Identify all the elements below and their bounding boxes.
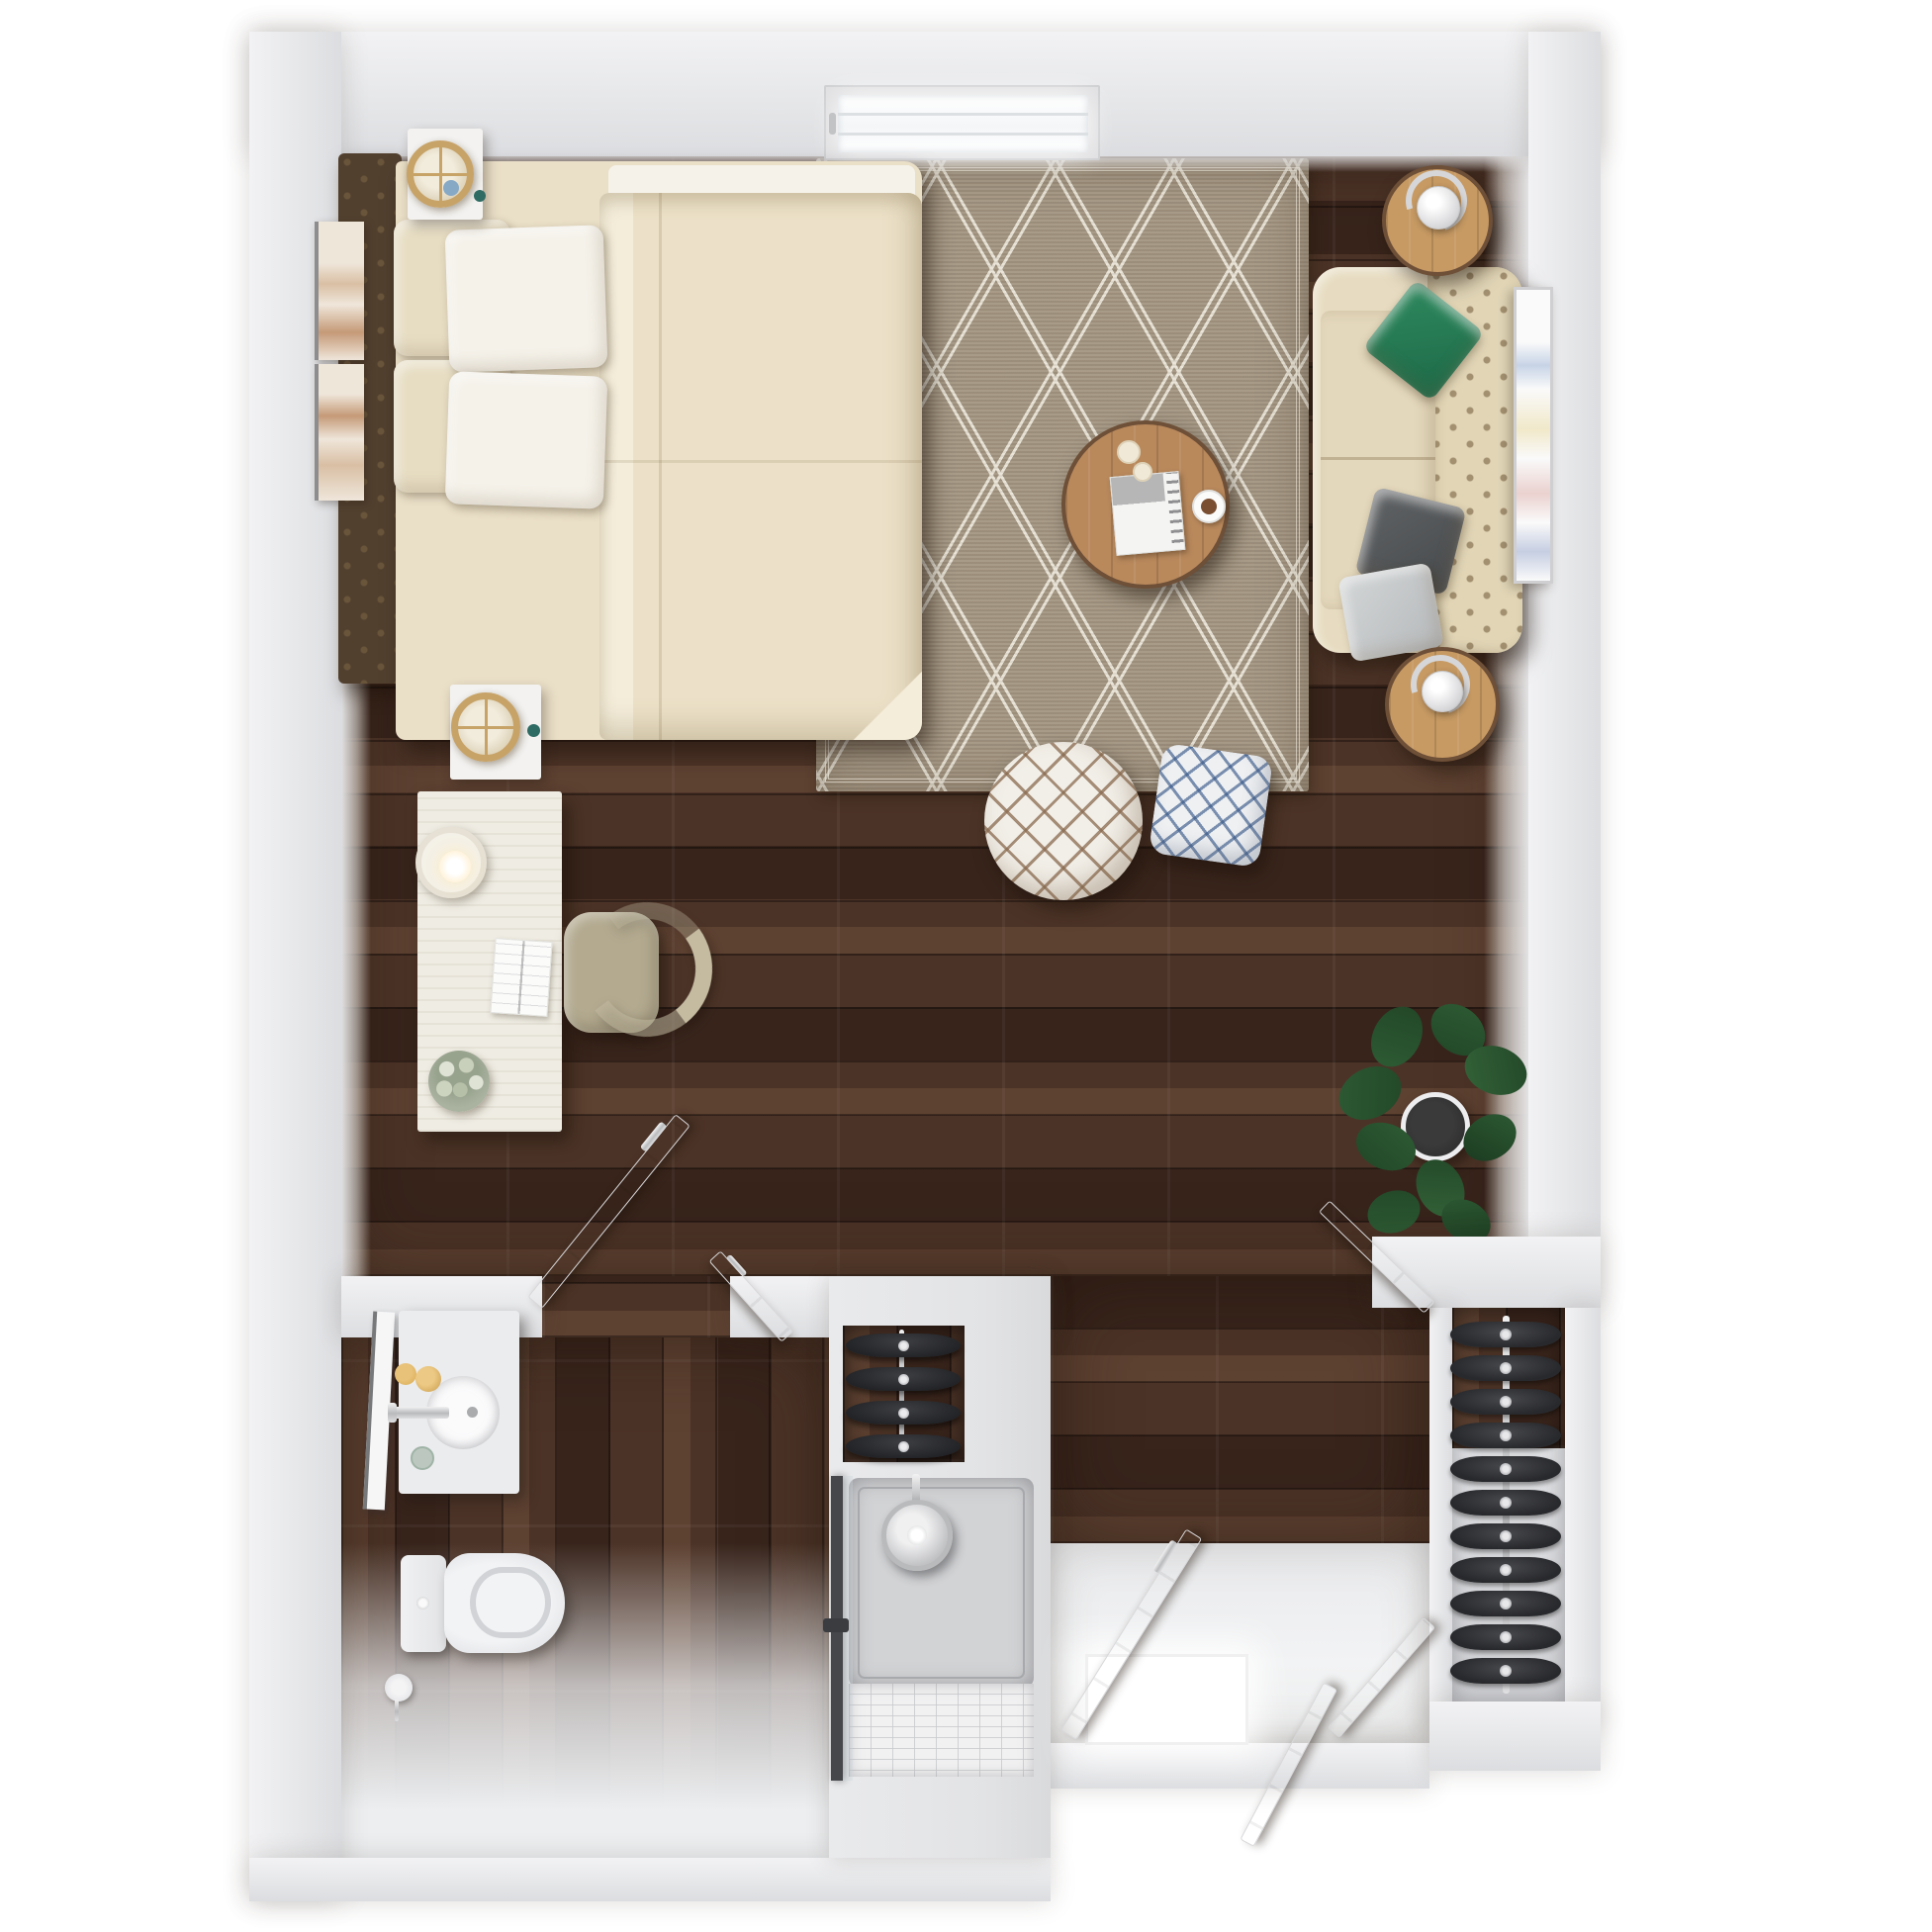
vanity-cup — [411, 1446, 434, 1470]
clothes-hanger — [1450, 1456, 1561, 1482]
wardrobe-hangers — [1450, 1322, 1561, 1690]
pouf-round — [984, 742, 1143, 900]
clothes-hanger — [1450, 1591, 1561, 1616]
shower-glass-handle — [823, 1618, 849, 1632]
sofa-pillow-light-gray — [1337, 562, 1444, 662]
vanity-sink-drain — [467, 1407, 478, 1418]
corner-shelf — [846, 1334, 961, 1357]
pouf-square — [1149, 743, 1273, 868]
desk-notebook — [490, 938, 552, 1017]
wardrobe-right-wall — [1565, 1308, 1601, 1726]
end-table-bottom-lamp — [1422, 671, 1463, 712]
window-mullion — [838, 113, 1088, 116]
candle — [1133, 462, 1152, 482]
right-wall — [1528, 32, 1601, 1308]
toilet-paper-holder — [395, 1700, 399, 1721]
entry-wood-floor — [1051, 1276, 1429, 1543]
shelf-niche-shelves — [846, 1334, 961, 1458]
clothes-hanger — [1450, 1322, 1561, 1347]
corner-shelf — [846, 1401, 961, 1425]
clothes-hanger — [1450, 1389, 1561, 1415]
corner-shelf — [846, 1367, 961, 1391]
nightstand-top-lamp-accent — [443, 180, 459, 196]
vanity-soap — [395, 1363, 416, 1385]
nightstand-bottom-knob — [527, 724, 540, 737]
toilet-paper-roll — [385, 1674, 413, 1702]
end-table-top-lamp — [1417, 186, 1460, 230]
corner-shelf — [846, 1434, 961, 1458]
window-frame — [824, 85, 1100, 160]
shower-head-center — [907, 1525, 927, 1545]
duvet-corner-fold — [847, 668, 922, 740]
candle — [1117, 440, 1141, 464]
toilet-seat-ring — [470, 1567, 551, 1638]
toilet-flush-button — [416, 1597, 429, 1610]
bed — [396, 161, 922, 740]
clothes-hanger — [1450, 1355, 1561, 1381]
window-glass — [838, 95, 1088, 152]
wall-art-right-frame — [1514, 287, 1553, 584]
plant-leaf — [1361, 997, 1432, 1075]
shower-tile-floor — [849, 1684, 1034, 1777]
sofa — [1313, 267, 1522, 653]
duvet-crease — [599, 460, 922, 463]
plant-leaf — [1362, 1184, 1426, 1241]
clothes-hanger — [1450, 1490, 1561, 1516]
duvet-crease — [659, 193, 662, 740]
bed-pillow-white — [445, 371, 608, 509]
plant — [1337, 1007, 1521, 1237]
clothes-hanger — [1450, 1523, 1561, 1549]
desk-lamp-glow — [439, 851, 471, 882]
toilet-bowl — [444, 1553, 565, 1653]
vanity-faucet-handle — [388, 1403, 397, 1423]
clothes-hanger — [1450, 1658, 1561, 1684]
doorway-floor-strip — [542, 1276, 730, 1337]
wardrobe-bottom-wall — [1429, 1702, 1601, 1771]
sofa-seam — [1321, 457, 1435, 460]
entry-bottom-wall — [1051, 1743, 1429, 1789]
bathroom-bottom-wall — [249, 1858, 1051, 1901]
nightstand-bottom-lamp — [451, 692, 520, 762]
clothes-hanger — [1450, 1624, 1561, 1650]
vanity-soap — [415, 1366, 441, 1392]
bed-pillow-white — [445, 225, 608, 372]
coffee-cup-coffee — [1201, 499, 1217, 514]
coffee-table-book — [1110, 471, 1186, 556]
desk-flowers — [428, 1051, 490, 1112]
coffee-table — [1061, 420, 1230, 589]
wall-art-left-frame — [315, 222, 364, 360]
nightstand-top-knob — [474, 190, 486, 202]
clothes-hanger — [1450, 1557, 1561, 1583]
floor-plan-canvas — [0, 0, 1932, 1932]
window-handle — [829, 113, 836, 135]
duvet — [599, 193, 922, 740]
wall-art-left-frame — [315, 364, 364, 501]
clothes-hanger — [1450, 1423, 1561, 1448]
vanity-faucet — [394, 1407, 449, 1419]
nightstand-top-lamp — [407, 140, 474, 208]
wardrobe-left-wall — [1429, 1308, 1452, 1726]
plant-leaf — [1330, 1056, 1411, 1130]
window-mullion — [838, 133, 1088, 136]
